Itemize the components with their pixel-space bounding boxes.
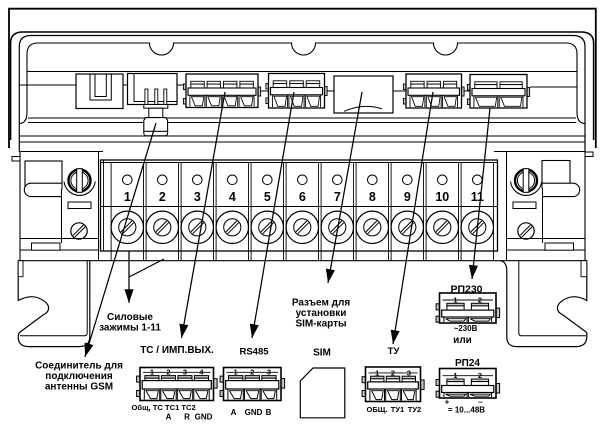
svg-text:ОБЩ.: ОБЩ. bbox=[367, 405, 388, 414]
svg-text:установки: установки bbox=[296, 308, 347, 319]
svg-text:8: 8 bbox=[369, 190, 376, 204]
svg-text:4: 4 bbox=[229, 190, 236, 204]
svg-text:В: В bbox=[266, 408, 272, 417]
svg-text:3: 3 bbox=[194, 190, 201, 204]
svg-text:~230В: ~230В bbox=[454, 324, 478, 333]
svg-text:SIM-карты: SIM-карты bbox=[295, 319, 346, 330]
svg-text:зажимы 1-11: зажимы 1-11 bbox=[99, 323, 161, 334]
svg-text:РП24: РП24 bbox=[455, 358, 480, 369]
svg-text:RS485: RS485 bbox=[239, 347, 269, 358]
svg-text:5: 5 bbox=[264, 190, 271, 204]
svg-text:11: 11 bbox=[471, 190, 484, 204]
svg-text:или: или bbox=[453, 335, 472, 346]
svg-text:Разъем для: Разъем для bbox=[292, 298, 351, 309]
svg-text:ТС / ИМП.ВЫХ.: ТС / ИМП.ВЫХ. bbox=[140, 345, 214, 356]
svg-text:Силовые: Силовые bbox=[107, 312, 153, 323]
svg-text:1: 1 bbox=[124, 190, 131, 204]
svg-text:GND: GND bbox=[245, 408, 263, 417]
svg-text:ТУ2: ТУ2 bbox=[408, 405, 421, 414]
svg-text:SIM: SIM bbox=[313, 348, 331, 359]
svg-text:Общ, ТС ТС1 ТС2: Общ, ТС ТС1 ТС2 bbox=[132, 403, 196, 412]
svg-text:антенны GSM: антенны GSM bbox=[45, 382, 113, 393]
svg-text:А: А bbox=[166, 413, 172, 422]
svg-text:Соединитель для: Соединитель для bbox=[35, 361, 123, 372]
svg-text:6: 6 bbox=[299, 190, 306, 204]
svg-text:= 10...48В: = 10...48В bbox=[448, 406, 485, 415]
svg-text:R: R bbox=[184, 413, 190, 422]
svg-text:10: 10 bbox=[435, 190, 449, 204]
svg-text:подключения: подключения bbox=[45, 371, 113, 382]
svg-text:9: 9 bbox=[404, 190, 411, 204]
svg-text:GND: GND bbox=[195, 413, 213, 422]
svg-text:А: А bbox=[231, 408, 237, 417]
svg-text:ТУ: ТУ bbox=[388, 346, 400, 357]
svg-text:7: 7 bbox=[334, 190, 341, 204]
svg-text:2: 2 bbox=[159, 190, 166, 204]
svg-text:ТУ1: ТУ1 bbox=[391, 405, 404, 414]
